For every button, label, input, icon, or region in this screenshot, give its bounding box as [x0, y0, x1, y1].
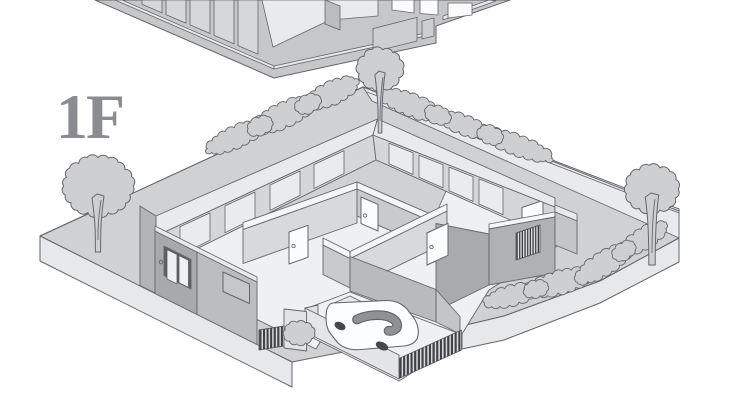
svg-text:1F: 1F	[56, 81, 123, 152]
